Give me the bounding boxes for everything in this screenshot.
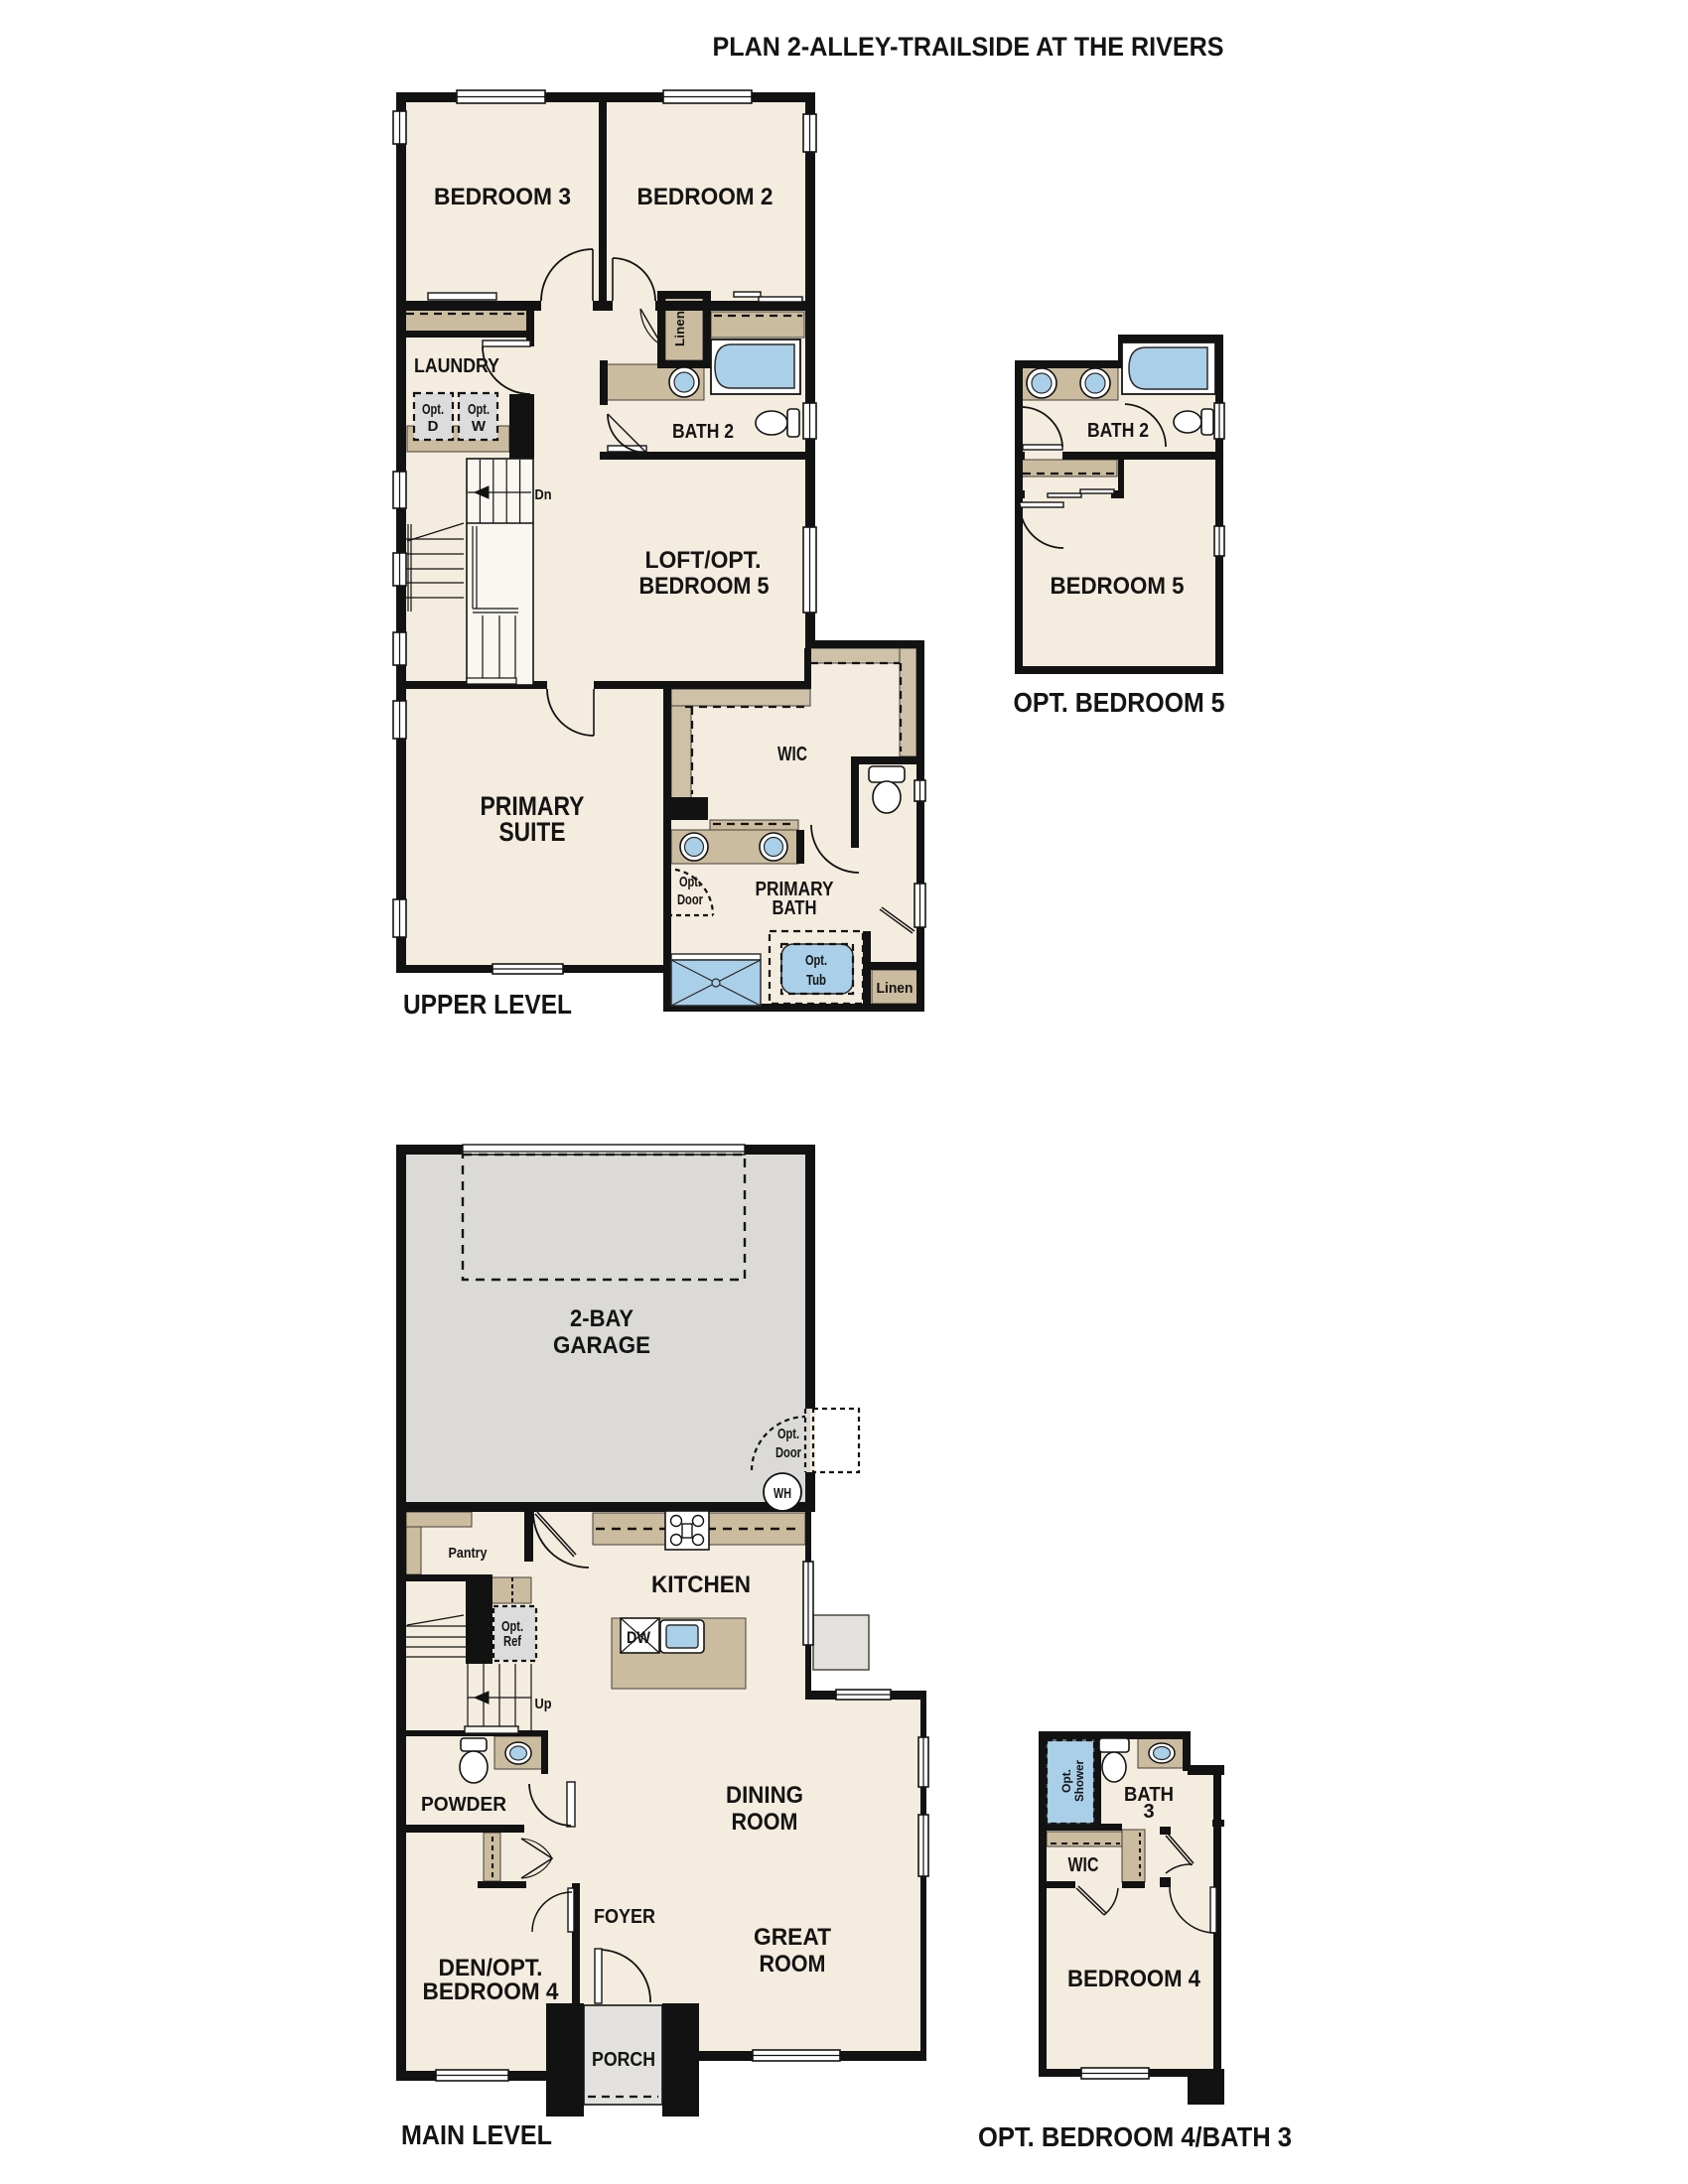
svg-text:BEDROOM 5: BEDROOM 5: [1051, 573, 1185, 600]
svg-text:Shower: Shower: [1072, 1760, 1086, 1802]
svg-text:PORCH: PORCH: [592, 2049, 655, 2071]
svg-text:KITCHEN: KITCHEN: [651, 1571, 751, 1598]
svg-text:LOFT/OPT.: LOFT/OPT.: [645, 547, 762, 574]
svg-text:OPT. BEDROOM 5: OPT. BEDROOM 5: [1014, 687, 1225, 718]
svg-text:Up: Up: [535, 1696, 552, 1712]
svg-text:Linen: Linen: [877, 980, 914, 997]
svg-text:MAIN LEVEL: MAIN LEVEL: [401, 2119, 552, 2150]
svg-text:BEDROOM 3: BEDROOM 3: [434, 184, 571, 210]
svg-text:BATH: BATH: [773, 897, 817, 919]
svg-text:WIC: WIC: [777, 744, 807, 765]
svg-text:D: D: [428, 418, 439, 435]
svg-text:POWDER: POWDER: [421, 1794, 507, 1816]
svg-text:OPT. BEDROOM 4/BATH 3: OPT. BEDROOM 4/BATH 3: [978, 2121, 1292, 2152]
svg-text:ROOM: ROOM: [760, 1951, 826, 1978]
svg-text:PLAN 2-ALLEY-TRAILSIDE AT THE: PLAN 2-ALLEY-TRAILSIDE AT THE RIVERS: [713, 32, 1224, 62]
svg-text:BEDROOM 4: BEDROOM 4: [423, 1979, 560, 2005]
svg-text:Opt.: Opt.: [777, 1426, 799, 1442]
svg-text:Opt.: Opt.: [1059, 1769, 1073, 1793]
svg-text:Ref: Ref: [503, 1633, 522, 1650]
svg-text:Opt.: Opt.: [679, 874, 701, 890]
svg-text:BEDROOM 4: BEDROOM 4: [1067, 1966, 1201, 1992]
svg-text:FOYER: FOYER: [594, 1906, 655, 1928]
svg-text:DINING: DINING: [726, 1782, 803, 1809]
svg-text:Linen: Linen: [672, 311, 687, 346]
svg-text:W: W: [472, 418, 487, 435]
svg-text:SUITE: SUITE: [499, 817, 566, 847]
svg-text:WH: WH: [774, 1485, 791, 1502]
svg-text:ROOM: ROOM: [732, 1809, 798, 1836]
svg-text:Tub: Tub: [806, 972, 826, 989]
svg-text:Dn: Dn: [535, 486, 552, 503]
svg-text:2-BAY: 2-BAY: [570, 1305, 633, 1332]
svg-text:Opt.: Opt.: [422, 401, 444, 418]
svg-text:Door: Door: [775, 1444, 801, 1461]
svg-text:BEDROOM 2: BEDROOM 2: [637, 184, 774, 210]
svg-text:DEN/OPT.: DEN/OPT.: [439, 1955, 543, 1981]
svg-text:BEDROOM 5: BEDROOM 5: [639, 573, 770, 600]
svg-text:Opt.: Opt.: [468, 401, 490, 418]
svg-text:BATH 2: BATH 2: [672, 421, 734, 443]
svg-text:DW: DW: [627, 1628, 651, 1647]
svg-text:BATH 2: BATH 2: [1087, 420, 1149, 442]
svg-text:WIC: WIC: [1068, 1854, 1099, 1876]
svg-text:GREAT: GREAT: [754, 1924, 831, 1951]
svg-text:3: 3: [1143, 1801, 1154, 1823]
svg-text:LAUNDRY: LAUNDRY: [414, 355, 500, 377]
svg-text:Door: Door: [677, 891, 703, 908]
svg-text:UPPER LEVEL: UPPER LEVEL: [403, 989, 572, 1020]
svg-text:GARAGE: GARAGE: [553, 1332, 650, 1359]
svg-text:Pantry: Pantry: [449, 1545, 489, 1562]
svg-text:Opt.: Opt.: [805, 952, 827, 969]
